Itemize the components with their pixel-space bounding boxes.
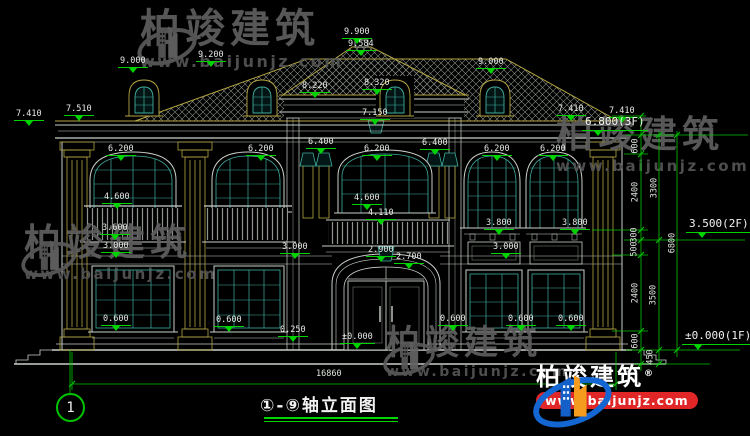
axis-number: 1 [66,400,74,416]
brand-logo: 柏竣建筑® www.baijunjz.com [532,364,698,409]
cad-elevation-screenshot: 柏竣建筑 www.baijunjz.com 柏竣建筑 www.baijunjz.… [0,0,750,436]
drawing-title: ①-⑨轴立面图 [260,391,378,416]
title-underline [264,421,398,422]
title-underline [264,417,398,419]
axis-marker-1: 1 [56,393,85,422]
brand-logo-icon [532,364,616,432]
registered-mark: ® [644,369,656,379]
